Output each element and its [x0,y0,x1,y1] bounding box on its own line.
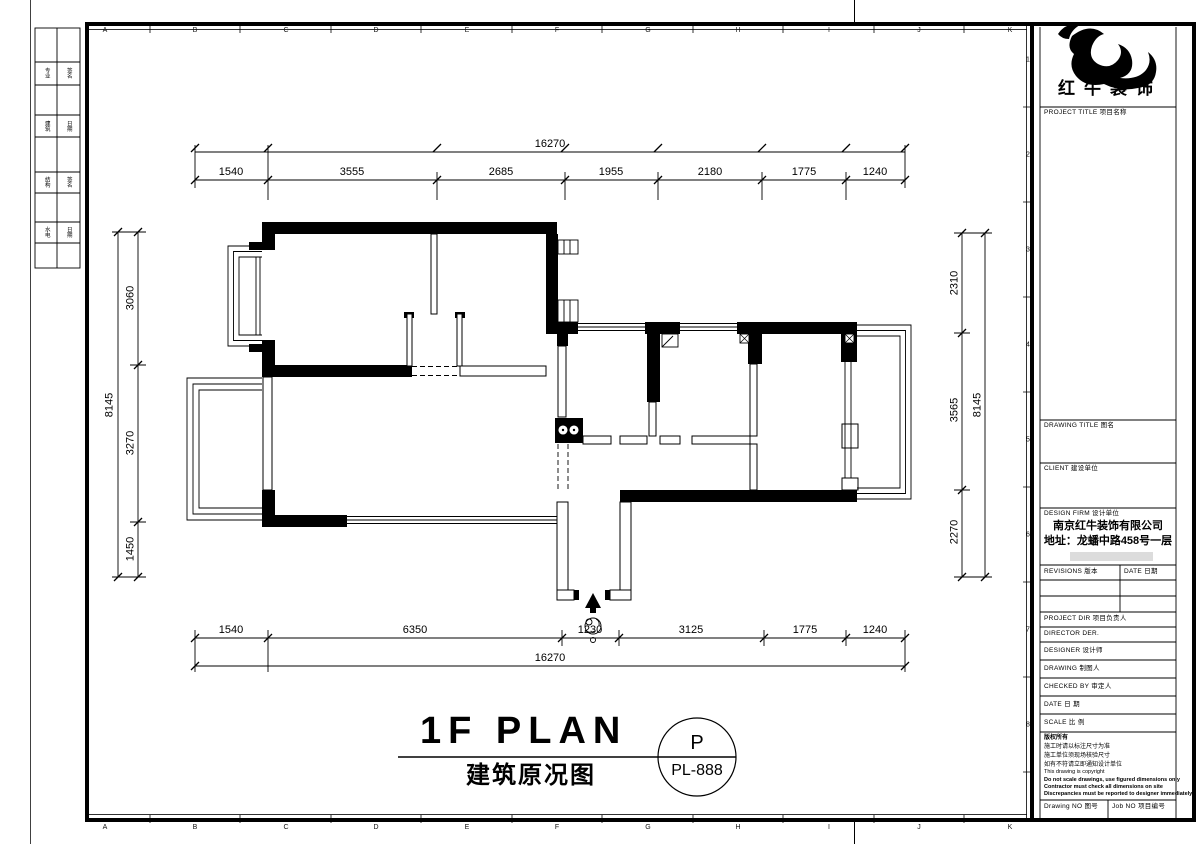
dim-right-seg: 2270 [950,520,961,544]
grid-letter: I [828,27,830,34]
titleblock-row: PROJECT DIR 项目负责人 [1044,616,1127,623]
dim-bottom-seg: 1775 [793,625,817,636]
grid-letter: K [1008,824,1013,831]
titleblock-row: DATE 日 期 [1044,702,1080,709]
copyright-note: Discrepancies must be reported to design… [1044,792,1192,798]
titleblock-row: DIRECTOR DER. [1044,631,1099,638]
grid-letter: J [917,27,921,34]
plan-dashed-openings [412,367,568,491]
dim-bottom-seg: 1540 [219,625,243,636]
plan-fixtures [558,334,854,643]
grid-letter: I [828,824,830,831]
dim-right-seg: 2310 [950,271,961,295]
plan-partition-walls [263,234,858,600]
grid-letter: K [1008,27,1013,34]
dim-top-seg: 1775 [792,167,816,178]
grid-letter: G [645,27,650,34]
grid-number: 4 [1026,342,1030,349]
titleblock-drawing-title-label: DRAWING TITLE 图名 [1044,423,1114,430]
dim-top-seg: 2685 [489,167,513,178]
dim-left-seg: 3060 [126,286,137,310]
titleblock-date-col-label: DATE 日期 [1124,569,1158,576]
grid-letter: F [555,824,559,831]
signoff-cell: 专业 [43,68,49,79]
signoff-cell: 结构 [43,177,49,188]
titleblock-revisions-label: REVISIONS 版本 [1044,569,1098,576]
copyright-note: 施工单位须现场核验尺寸 [1044,753,1110,759]
brand-name: 红牛装饰 [1058,80,1162,97]
grid-letter: A [103,824,108,831]
dim-top-seg: 1955 [599,167,623,178]
page-subtitle: 建筑原况图 [466,764,596,788]
grid-letter: J [917,824,921,831]
signoff-cell: 签名 [65,177,71,188]
grid-letter: H [735,27,740,34]
dim-left-seg: 3270 [126,431,137,455]
titleblock-row: DRAWING 制图人 [1044,666,1100,673]
dim-bottom-seg: 6350 [403,625,427,636]
grid-number: 5 [1026,437,1030,444]
dim-top-seg: 3555 [340,167,364,178]
dim-top-seg: 1540 [219,167,243,178]
drawing-sheet: A B C D E F G H I J K A B C D E F G H I … [0,0,1200,844]
signoff-cell: 水电 [43,227,49,238]
titleblock-muted-bar [1070,552,1153,561]
titleblock-row: CHECKED BY 审定人 [1044,684,1112,691]
titleblock-client-label: CLIENT 建设单位 [1044,466,1098,473]
titleblock-drawing-no-label: Drawing NO 图号 [1044,804,1098,811]
titleblock-design-firm-label: DESIGN FIRM 设计单位 [1044,511,1119,518]
grid-letter: D [373,27,378,34]
dim-right-seg: 3565 [950,398,961,422]
grid-number: 3 [1026,247,1030,254]
grid-number: 1 [1026,57,1030,64]
grid-letter: E [465,824,470,831]
titleblock-row: SCALE 比 例 [1044,720,1085,727]
signoff-cell: 日期 [65,121,71,132]
grid-letter: C [283,824,288,831]
signoff-table [35,28,80,268]
grid-letter: F [555,27,559,34]
grid-number: 8 [1026,722,1030,729]
dim-bottom-seg: 1240 [863,625,887,636]
dim-bottom-seg: 3125 [679,625,703,636]
page-title: 1F PLAN [420,712,627,750]
dim-top-seg: 2180 [698,167,722,178]
titleblock-project-title-label: PROJECT TITLE 项目名称 [1044,110,1127,117]
stamp-number: PL-888 [671,763,723,779]
dim-top-seg: 1240 [863,167,887,178]
copyright-note: Do not scale drawings, use figured dimen… [1044,778,1180,784]
grid-letter: B [193,824,198,831]
titleblock-row: DESIGNER 设计师 [1044,648,1103,655]
dim-bottom-total: 16270 [535,653,566,664]
signoff-cell: 日期 [65,227,71,238]
copyright-note: 施工时请以标注尺寸为准 [1044,744,1110,750]
copyright-note: This drawing is copyright [1044,770,1105,776]
stamp-letter: P [690,733,703,753]
dim-left-total: 8145 [105,393,116,417]
titleblock-job-no-label: Job NO 项目编号 [1112,804,1165,811]
signoff-cell: 建筑 [43,121,49,132]
grid-letter: C [283,27,288,34]
grid-letter: G [645,824,650,831]
copyright-note: Contractor must check all dimensions on … [1044,785,1163,791]
dim-bottom-seg: 1230 [578,625,602,636]
grid-number: 6 [1026,532,1030,539]
dim-left-seg: 1450 [126,537,137,561]
grid-letter: A [103,27,108,34]
grid-letter: D [373,824,378,831]
grid-number: 2 [1026,152,1030,159]
dim-right-total: 8145 [973,393,984,417]
signoff-cell: 签名 [65,68,71,79]
dim-top-total: 16270 [535,139,566,150]
grid-letter: E [465,27,470,34]
grid-number: 7 [1026,627,1030,634]
plan-solid-walls [249,222,857,600]
grid-letter: B [193,27,198,34]
grid-letter: H [735,824,740,831]
copyright-note: 版权所有 [1044,735,1068,741]
copyright-note: 如有不符请立即通知设计单位 [1044,762,1122,768]
design-firm-address: 地址：龙蟠中路458号一层 [1044,536,1172,547]
grid-ticks [150,25,1031,823]
design-firm-name: 南京红牛装饰有限公司 [1053,521,1163,532]
